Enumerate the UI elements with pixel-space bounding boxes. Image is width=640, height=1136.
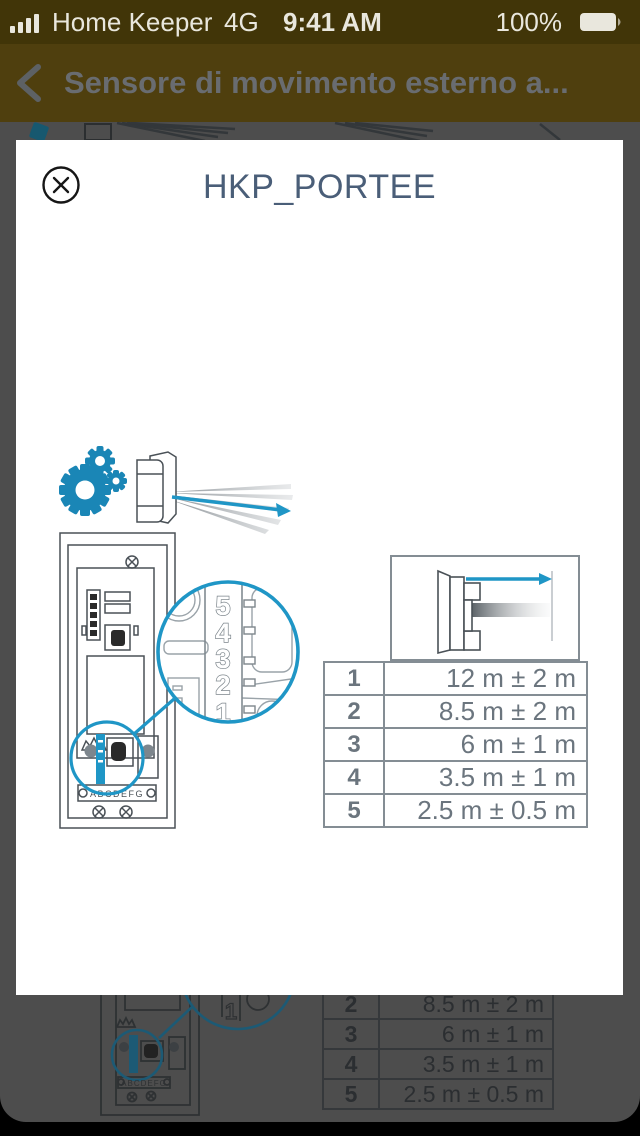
table-row: 4 3.5 m ± 1 m bbox=[324, 761, 587, 794]
range-selector-slider bbox=[96, 734, 105, 784]
dimmed-terminal-labels: ABCDEFG bbox=[121, 1079, 167, 1088]
table-row: 2 8.5 m ± 2 m bbox=[324, 695, 587, 728]
dimmed-figure-top-fragment bbox=[25, 122, 615, 142]
settings-sensor-beam-icon bbox=[55, 440, 295, 535]
back-chevron-icon[interactable] bbox=[12, 62, 46, 104]
range-profile-diagram bbox=[392, 557, 578, 659]
range-profile-box bbox=[390, 555, 580, 661]
row-range: 6 m ± 1 m bbox=[384, 728, 587, 761]
motion-sensor-icon bbox=[137, 452, 176, 523]
page-title: HKP_PORTEE bbox=[16, 168, 623, 207]
table-row: 4 3.5 m ± 1 m bbox=[323, 1049, 553, 1079]
row-position: 5 bbox=[323, 1079, 379, 1109]
table-row: 1 12 m ± 2 m bbox=[324, 662, 587, 695]
row-range: 3.5 m ± 1 m bbox=[379, 1049, 553, 1079]
row-range: 2.5 m ± 0.5 m bbox=[379, 1079, 553, 1109]
table-row: 5 2.5 m ± 0.5 m bbox=[323, 1079, 553, 1109]
dimmed-range-table: 2 8.5 m ± 2 m 3 6 m ± 1 m 4 3.5 m ± 1 m … bbox=[322, 988, 554, 1110]
row-position: 4 bbox=[323, 1049, 379, 1079]
row-position: 4 bbox=[324, 761, 384, 794]
dial-number-5: 5 bbox=[215, 591, 230, 621]
row-range: 12 m ± 2 m bbox=[384, 662, 587, 695]
network-type-label: 4G bbox=[224, 0, 259, 44]
nav-bar: Sensore di movimento esterno a... bbox=[0, 44, 640, 122]
battery-icon bbox=[578, 0, 626, 44]
dimmed-sensor-diagram: 1 ABCDEFG bbox=[95, 985, 310, 1122]
table-row: 5 2.5 m ± 0.5 m bbox=[324, 794, 587, 827]
app-screen: Home Keeper 4G 9:41 AM 100% Sensore di m… bbox=[0, 0, 640, 1136]
row-range: 6 m ± 1 m bbox=[379, 1019, 553, 1049]
carrier-label: Home Keeper bbox=[52, 0, 212, 44]
row-range: 8.5 m ± 2 m bbox=[384, 695, 587, 728]
row-position: 5 bbox=[324, 794, 384, 827]
row-position: 3 bbox=[323, 1019, 379, 1049]
document-modal: HKP_PORTEE bbox=[16, 140, 623, 995]
sensor-internals-diagram: ABCDEFG bbox=[58, 528, 308, 830]
row-position: 3 bbox=[324, 728, 384, 761]
range-table: 1 12 m ± 2 m 2 8.5 m ± 2 m 3 6 m ± 1 m 4… bbox=[323, 661, 588, 828]
gears-icon bbox=[59, 446, 127, 516]
nav-bar-title: Sensore di movimento esterno a... bbox=[64, 44, 569, 122]
signal-strength-icon bbox=[10, 0, 50, 44]
row-range: 3.5 m ± 1 m bbox=[384, 761, 587, 794]
row-range: 2.5 m ± 0.5 m bbox=[384, 794, 587, 827]
clock-label: 9:41 AM bbox=[283, 0, 382, 44]
table-row: 3 6 m ± 1 m bbox=[324, 728, 587, 761]
table-row: 3 6 m ± 1 m bbox=[323, 1019, 553, 1049]
dimmed-dial-number: 1 bbox=[225, 999, 237, 1024]
battery-percent-label: 100% bbox=[496, 0, 563, 44]
status-bar: Home Keeper 4G 9:41 AM 100% bbox=[0, 0, 640, 44]
row-position: 2 bbox=[324, 695, 384, 728]
row-position: 1 bbox=[324, 662, 384, 695]
dial-number-2: 2 bbox=[215, 670, 230, 700]
